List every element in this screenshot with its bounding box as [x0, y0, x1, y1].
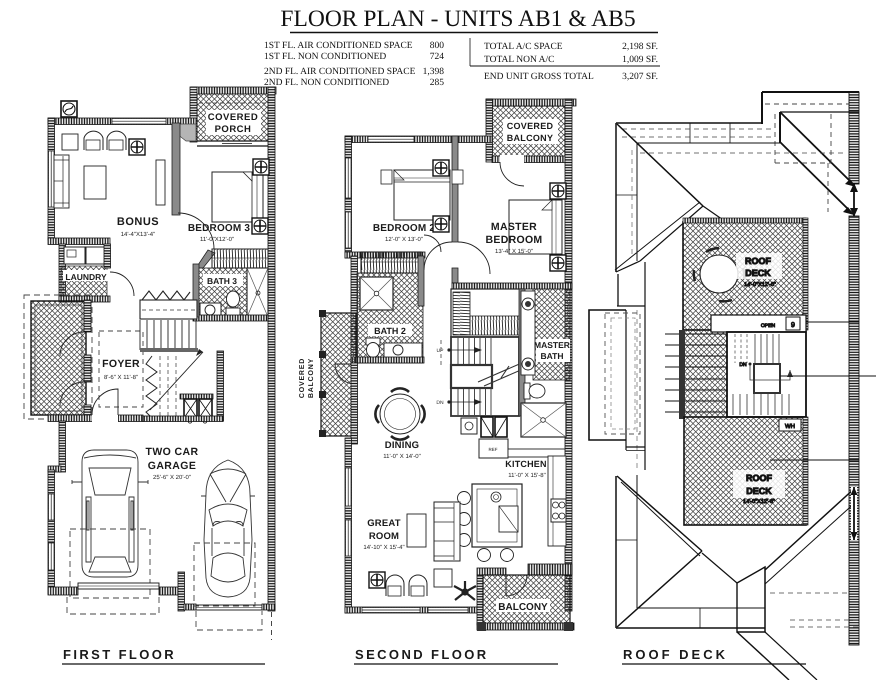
svg-text:FOYER: FOYER: [102, 358, 140, 370]
svg-text:BATH 3: BATH 3: [207, 276, 237, 286]
svg-text:BALCONY: BALCONY: [308, 358, 315, 398]
svg-text:ROOF: ROOF: [745, 256, 772, 266]
svg-text:BALCONY: BALCONY: [507, 133, 554, 143]
svg-text:DINING: DINING: [385, 440, 419, 451]
svg-text:FIRST FLOOR: FIRST FLOOR: [63, 647, 176, 662]
svg-text:12'-0" X 13'-0": 12'-0" X 13'-0": [385, 236, 423, 243]
svg-text:FLOOR PLAN - UNITS AB1 & AB5: FLOOR PLAN - UNITS AB1 & AB5: [280, 6, 635, 32]
svg-text:8'-6" X 11'-8": 8'-6" X 11'-8": [104, 374, 138, 381]
svg-text:TOTAL NON A/C: TOTAL NON A/C: [484, 55, 555, 65]
svg-text:ROOM: ROOM: [369, 531, 399, 542]
svg-text:1,398: 1,398: [423, 67, 445, 77]
svg-text:2ND FL. AIR CONDITIONED SPACE: 2ND FL. AIR CONDITIONED SPACE: [264, 67, 416, 77]
svg-text:25'-6" X 20'-0": 25'-6" X 20'-0": [153, 474, 191, 481]
svg-text:1ST FL. AIR CONDITIONED SPACE: 1ST FL. AIR CONDITIONED SPACE: [264, 41, 413, 51]
svg-text:BEDROOM 2: BEDROOM 2: [373, 223, 436, 234]
svg-text:1,009 SF.: 1,009 SF.: [622, 55, 658, 65]
svg-text:COVERED: COVERED: [507, 121, 554, 131]
svg-text:BATH 2: BATH 2: [374, 326, 406, 336]
svg-text:SECOND FLOOR: SECOND FLOOR: [355, 647, 489, 662]
svg-text:OPEN: OPEN: [761, 323, 776, 329]
svg-text:MASTER: MASTER: [534, 340, 570, 350]
svg-text:GARAGE: GARAGE: [148, 460, 197, 472]
svg-text:9: 9: [791, 322, 795, 329]
svg-text:END UNIT GROSS TOTAL: END UNIT GROSS TOTAL: [484, 72, 594, 82]
svg-text:PORCH: PORCH: [215, 124, 252, 135]
svg-text:14'-10" X 15'-4": 14'-10" X 15'-4": [363, 544, 404, 551]
svg-text:TOTAL A/C SPACE: TOTAL A/C SPACE: [484, 42, 563, 52]
svg-text:LAUNDRY: LAUNDRY: [65, 272, 107, 282]
svg-text:11'-0"X12'-0": 11'-0"X12'-0": [200, 236, 234, 243]
svg-text:BONUS: BONUS: [117, 216, 159, 228]
svg-text:DN: DN: [436, 400, 444, 406]
svg-text:14'-4"X13'-4": 14'-4"X13'-4": [121, 231, 156, 238]
svg-text:DN: DN: [739, 362, 747, 368]
svg-text:COVERED: COVERED: [299, 358, 306, 398]
svg-text:BALCONY: BALCONY: [498, 602, 548, 613]
svg-text:BATH: BATH: [541, 351, 564, 361]
svg-text:13'-4" X 15'-0": 13'-4" X 15'-0": [495, 248, 533, 255]
svg-text:14'-0"X12'-6": 14'-0"X12'-6": [743, 499, 775, 505]
svg-text:REF: REF: [489, 447, 498, 452]
svg-text:11'-0" X 14'-0": 11'-0" X 14'-0": [383, 453, 420, 460]
svg-text:1ST FL. NON CONDITIONED: 1ST FL. NON CONDITIONED: [264, 52, 386, 62]
svg-text:11'-0" X 15'-8": 11'-0" X 15'-8": [508, 472, 545, 479]
svg-text:BEDROOM: BEDROOM: [486, 234, 543, 246]
svg-text:MASTER: MASTER: [491, 221, 537, 233]
svg-text:2ND FL. NON CONDITIONED: 2ND FL. NON CONDITIONED: [264, 78, 389, 88]
svg-text:DECK: DECK: [746, 486, 772, 496]
svg-text:724: 724: [430, 52, 445, 62]
svg-text:800: 800: [430, 41, 445, 51]
svg-text:ROOF DECK: ROOF DECK: [623, 647, 728, 662]
svg-text:GREAT: GREAT: [367, 518, 401, 529]
svg-text:3,207 SF.: 3,207 SF.: [622, 72, 658, 82]
svg-text:ROOF: ROOF: [746, 473, 773, 483]
svg-text:285: 285: [430, 78, 445, 88]
svg-text:COVERED: COVERED: [208, 112, 258, 123]
svg-text:14'-0"X12'-6": 14'-0"X12'-6": [744, 282, 776, 288]
svg-text:KITCHEN: KITCHEN: [505, 459, 546, 469]
svg-text:WH: WH: [785, 423, 795, 430]
svg-text:BEDROOM 3: BEDROOM 3: [188, 223, 251, 234]
svg-text:UP: UP: [437, 348, 445, 354]
svg-text:2,198 SF.: 2,198 SF.: [622, 42, 658, 52]
svg-text:TWO CAR: TWO CAR: [146, 446, 199, 458]
svg-text:DECK: DECK: [745, 268, 771, 278]
